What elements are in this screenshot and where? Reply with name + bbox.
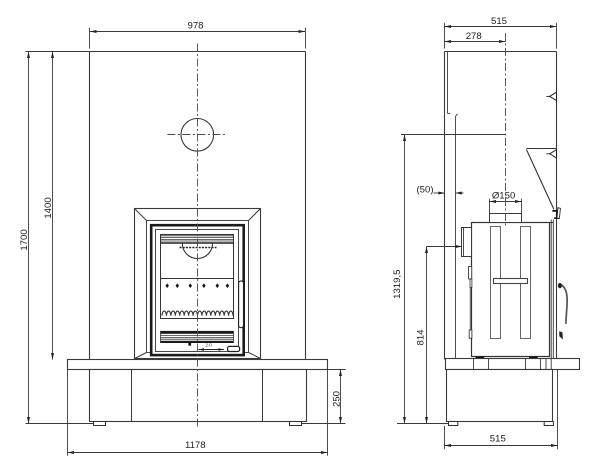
svg-text:2-0: 2-0 [206, 343, 213, 348]
svg-text:Ø150: Ø150 [492, 191, 515, 202]
svg-text:1400: 1400 [43, 197, 54, 218]
svg-text:515: 515 [491, 16, 507, 27]
svg-text:515: 515 [490, 433, 506, 444]
svg-text:278: 278 [466, 31, 482, 42]
svg-text:814: 814 [415, 329, 426, 346]
svg-text:1178: 1178 [185, 440, 206, 451]
svg-text:1700: 1700 [19, 229, 30, 250]
svg-text:250: 250 [332, 391, 343, 407]
svg-text:978: 978 [187, 21, 203, 32]
svg-text:(50): (50) [416, 184, 433, 195]
svg-text:1319,5: 1319,5 [392, 270, 403, 299]
